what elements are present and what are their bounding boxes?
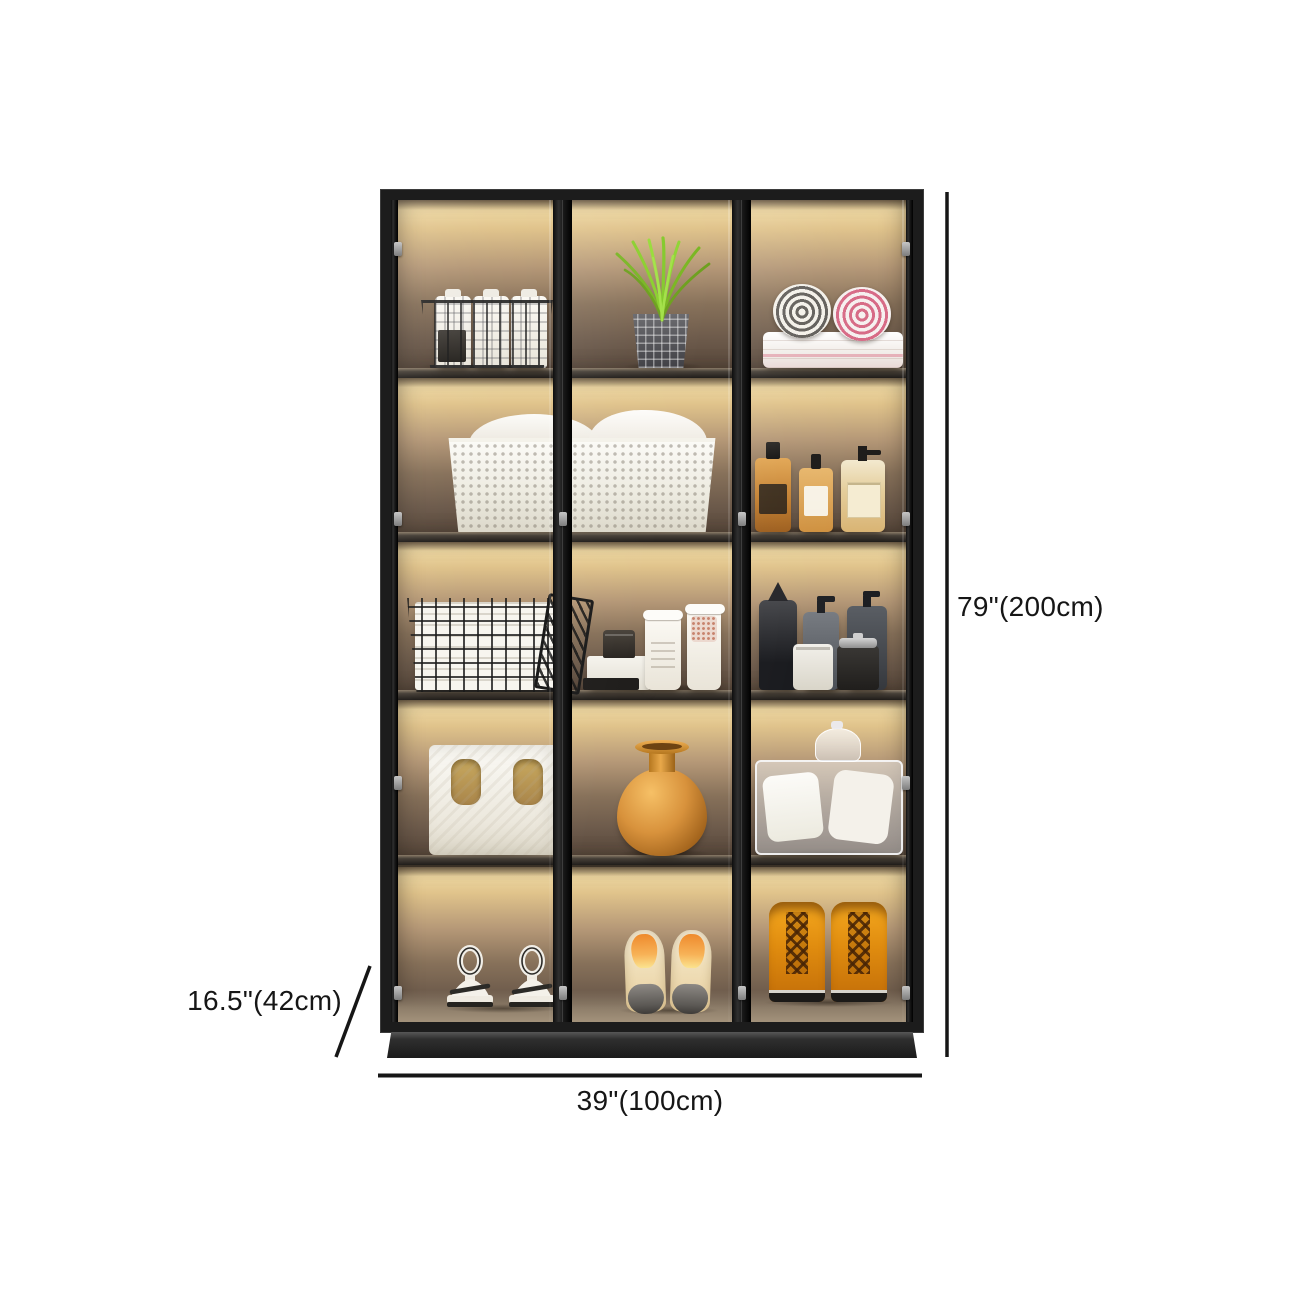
glass-jar — [815, 728, 861, 762]
pump-nozzle — [865, 450, 881, 455]
terracotta-vase-body — [617, 768, 707, 856]
door-hinge — [394, 776, 402, 790]
plaid-plant-pot — [629, 314, 693, 368]
door-divider-2 — [732, 200, 751, 1022]
cabinet-interior — [391, 200, 913, 1022]
display-cabinet — [381, 190, 923, 1032]
door-hinge — [394, 512, 402, 526]
door-hinge — [559, 986, 567, 1000]
black-jar-silver-lid — [837, 646, 879, 690]
lace-up-boot — [831, 902, 887, 1002]
cabinet-base — [387, 1032, 917, 1058]
cap-toe-pump — [670, 929, 713, 1012]
terracotta-vase-rim — [635, 740, 689, 754]
folded-towel-stack — [763, 332, 903, 368]
door-hinge — [738, 512, 746, 526]
door-hinge — [394, 242, 402, 256]
white-storage-bag — [429, 745, 567, 855]
depth-dimension-label: 16.5"(42cm) — [110, 985, 342, 1017]
dark-jar — [603, 630, 635, 658]
door-hinge — [559, 512, 567, 526]
door-stile-right — [906, 200, 913, 1022]
wire-basket — [421, 300, 553, 368]
amber-bottle — [799, 468, 833, 532]
door-stile-left — [391, 200, 398, 1022]
laundry-basket — [443, 438, 721, 532]
lace-up-boot — [769, 902, 825, 1002]
bag-handle-slot — [513, 759, 543, 805]
amber-bottle — [755, 458, 791, 532]
width-dimension-label: 39"(100cm) — [494, 1085, 806, 1117]
grass-plant — [603, 234, 721, 322]
bag-handle-slot — [451, 759, 481, 805]
door-hinge — [902, 776, 910, 790]
door-hinge — [394, 986, 402, 1000]
door-hinge — [902, 242, 910, 256]
white-jar — [793, 644, 833, 690]
height-dimension-label: 79"(200cm) — [957, 591, 1104, 623]
shelf-items-layer — [391, 200, 913, 1022]
pump-lotion-bottle — [841, 460, 885, 532]
door-hinge — [902, 512, 910, 526]
black-cosmetic-bottle — [759, 600, 797, 690]
cap-toe-pump — [624, 929, 667, 1012]
rolled-towel-gray — [773, 284, 831, 338]
white-canister — [645, 614, 681, 690]
rolled-towel-pink — [833, 287, 891, 341]
dark-tray — [583, 678, 639, 690]
clear-storage-box — [755, 760, 903, 855]
door-divider-1 — [553, 200, 572, 1022]
white-strappy-heels — [439, 916, 563, 1012]
door-hinge — [738, 986, 746, 1000]
door-hinge — [902, 986, 910, 1000]
speckled-canister — [687, 608, 721, 690]
product-dimension-diagram: 79"(200cm) 39"(100cm) 16.5"(42cm) — [0, 0, 1300, 1300]
